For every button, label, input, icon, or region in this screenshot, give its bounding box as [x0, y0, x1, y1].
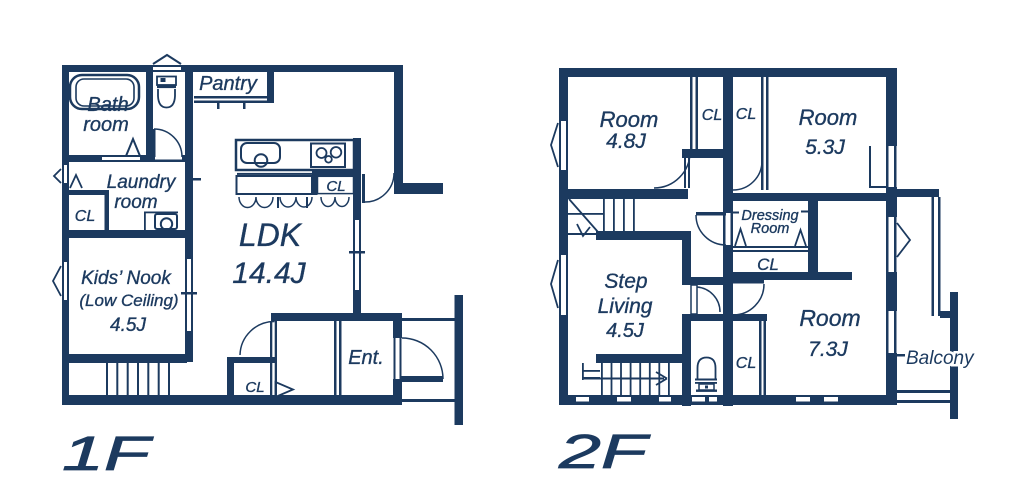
svg-text:4.8J: 4.8J [606, 130, 646, 153]
svg-text:Room: Room [751, 221, 790, 237]
svg-text:LDK: LDK [239, 217, 303, 253]
svg-text:1F: 1F [62, 427, 154, 480]
svg-text:room: room [83, 114, 129, 136]
svg-text:2F: 2F [558, 425, 651, 478]
svg-text:14.4J: 14.4J [232, 257, 306, 290]
svg-text:Pantry: Pantry [199, 73, 258, 95]
svg-text:CL: CL [702, 107, 722, 124]
svg-text:Balcony: Balcony [906, 348, 975, 369]
svg-text:4.5J: 4.5J [606, 320, 645, 342]
svg-text:Room: Room [799, 105, 858, 130]
svg-text:CL: CL [736, 106, 756, 123]
svg-text:Room: Room [799, 305, 860, 331]
svg-text:room: room [114, 192, 157, 213]
svg-text:Step: Step [604, 270, 647, 293]
svg-text:7.3J: 7.3J [808, 338, 848, 361]
svg-text:CL: CL [245, 379, 264, 396]
svg-text:Ent.: Ent. [348, 347, 384, 369]
svg-text:CL: CL [326, 178, 345, 195]
svg-text:5.3J: 5.3J [805, 136, 845, 159]
svg-text:Living: Living [598, 295, 653, 318]
svg-text:4.5J: 4.5J [110, 315, 146, 336]
svg-text:CL: CL [75, 208, 95, 225]
svg-text:Kids’ Nook: Kids’ Nook [81, 268, 172, 289]
svg-text:CL: CL [757, 255, 779, 274]
svg-text:Room: Room [600, 107, 659, 132]
svg-text:(Low Ceiling): (Low Ceiling) [79, 291, 178, 310]
svg-text:Bath: Bath [87, 94, 128, 116]
svg-text:CL: CL [736, 355, 756, 372]
svg-text:Laundry: Laundry [107, 172, 177, 193]
